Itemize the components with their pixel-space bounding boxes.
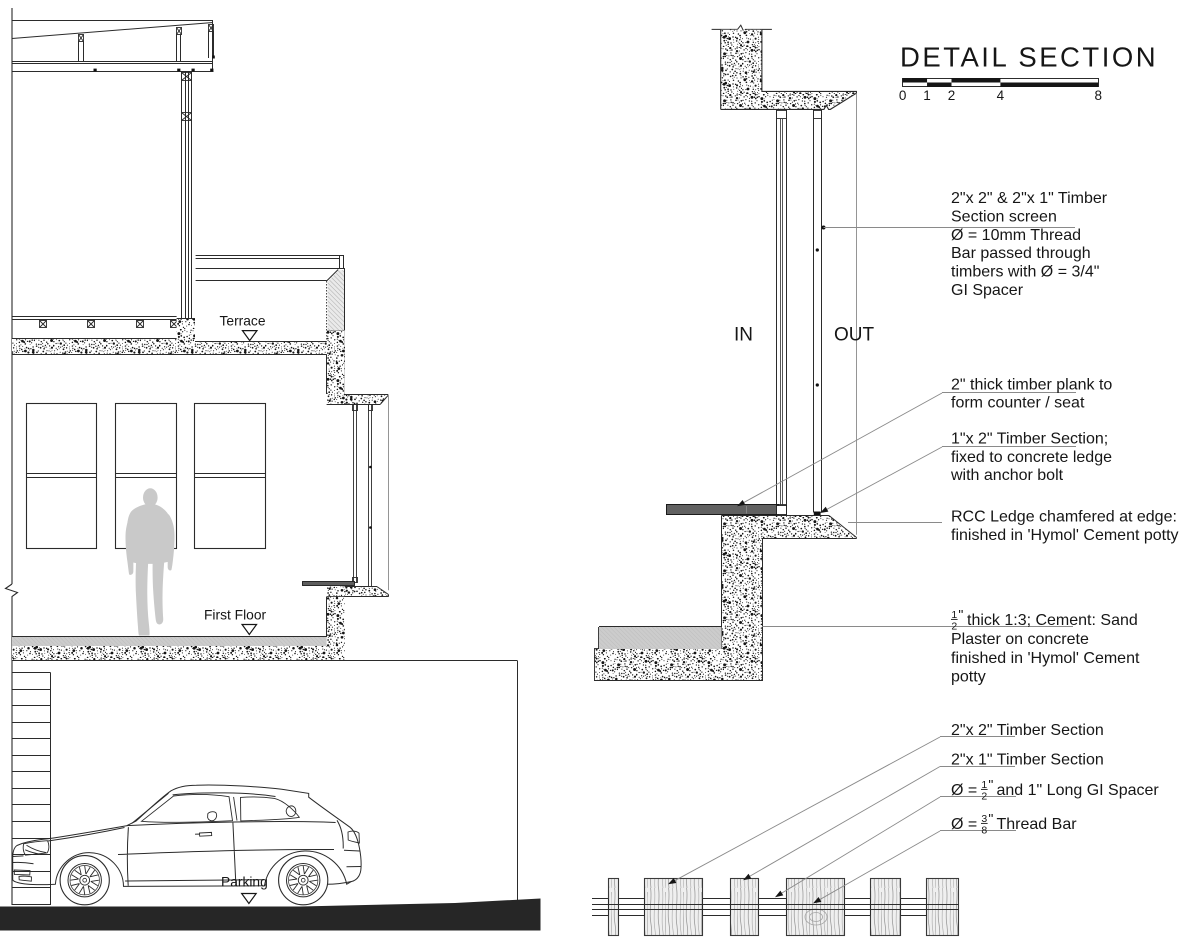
svg-text:Plaster on concrete: Plaster on concrete: [951, 631, 1089, 648]
svg-text:2"x 2" Timber Section: 2"x 2" Timber Section: [951, 722, 1104, 739]
svg-text:": ": [988, 811, 993, 827]
svg-text:4: 4: [997, 88, 1005, 103]
svg-text:First Floor: First Floor: [204, 608, 266, 623]
svg-text:OUT: OUT: [834, 325, 875, 346]
svg-text:RCC Ledge chamfered at edge:: RCC Ledge chamfered at edge:: [951, 509, 1177, 526]
svg-text:potty: potty: [951, 669, 986, 686]
svg-text:finished in 'Hymol' Cement pot: finished in 'Hymol' Cement potty: [951, 527, 1179, 544]
svg-text:with anchor bolt: with anchor bolt: [950, 467, 1064, 484]
svg-text:Ø =: Ø =: [951, 782, 977, 799]
svg-text:2" thick timber plank to: 2" thick timber plank to: [951, 377, 1112, 394]
svg-text:1"x 2" Timber Section;: 1"x 2" Timber Section;: [951, 431, 1108, 448]
svg-text:1: 1: [923, 88, 931, 103]
svg-text:form counter / seat: form counter / seat: [951, 395, 1085, 412]
svg-text:2: 2: [948, 88, 956, 103]
svg-text:8: 8: [981, 824, 987, 836]
svg-text:2"x 1" Timber Section: 2"x 1" Timber Section: [951, 752, 1104, 769]
svg-text:Thread Bar: Thread Bar: [997, 816, 1078, 833]
svg-text:fixed to concrete ledge: fixed to concrete ledge: [951, 449, 1112, 466]
svg-text:GI Spacer: GI Spacer: [951, 282, 1024, 299]
svg-text:Ø =: Ø =: [951, 816, 977, 833]
svg-text:": ": [958, 607, 963, 623]
svg-text:2: 2: [981, 790, 987, 802]
svg-text:Bar passed through: Bar passed through: [951, 245, 1091, 262]
svg-text:": ": [988, 777, 993, 793]
svg-text:DETAIL SECTION: DETAIL SECTION: [900, 42, 1158, 73]
svg-text:finished in 'Hymol' Cement: finished in 'Hymol' Cement: [951, 650, 1140, 667]
svg-text:Terrace: Terrace: [220, 314, 266, 329]
svg-text:and 1" Long GI Spacer: and 1" Long GI Spacer: [997, 782, 1160, 799]
svg-text:IN: IN: [734, 325, 753, 346]
svg-text:8: 8: [1094, 88, 1102, 103]
svg-text:2"x 2" & 2"x 1" Timber: 2"x 2" & 2"x 1" Timber: [951, 190, 1108, 207]
svg-text:Section screen: Section screen: [951, 208, 1057, 225]
svg-text:Parking: Parking: [221, 875, 268, 890]
svg-text:timbers with Ø = 3/4": timbers with Ø = 3/4": [951, 264, 1099, 281]
svg-text:thick 1:3; Cement: Sand: thick 1:3; Cement: Sand: [967, 612, 1138, 629]
svg-text:0: 0: [899, 88, 907, 103]
svg-text:Ø = 10mm Thread: Ø = 10mm Thread: [951, 227, 1081, 244]
